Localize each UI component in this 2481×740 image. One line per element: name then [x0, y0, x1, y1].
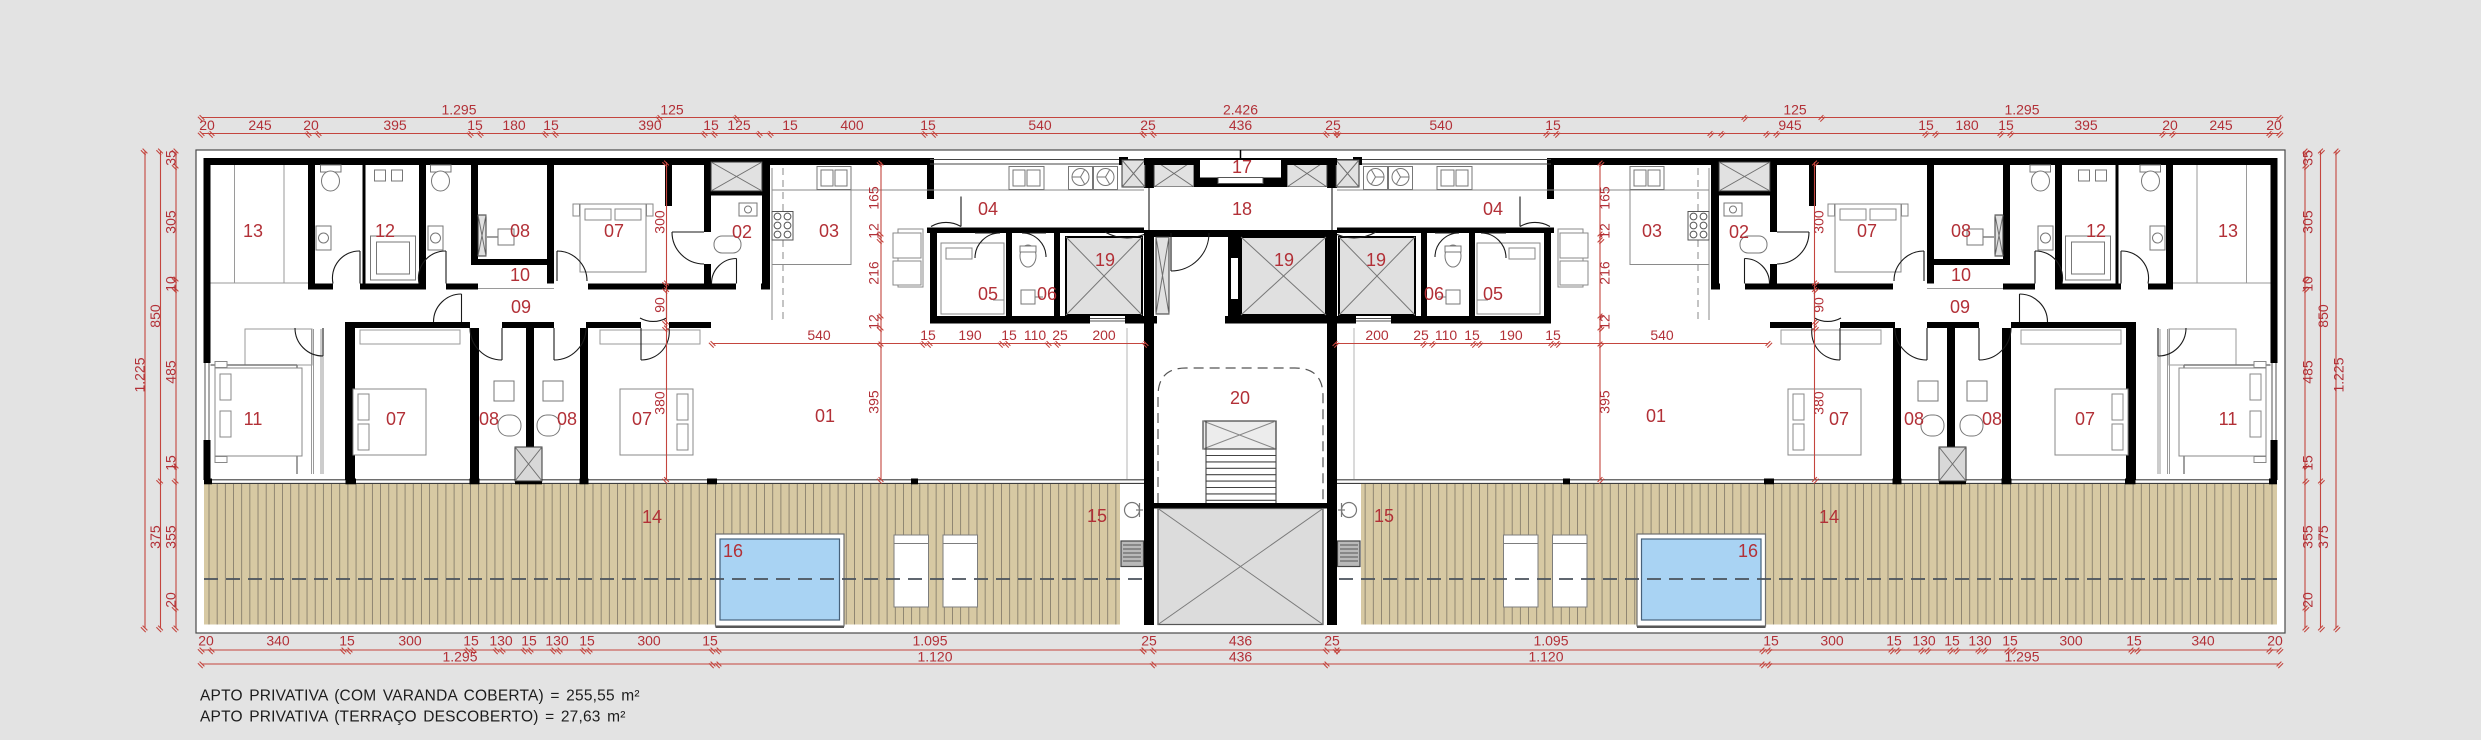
svg-text:11: 11: [2219, 409, 2238, 429]
svg-text:190: 190: [1499, 327, 1523, 343]
svg-text:15: 15: [1763, 633, 1779, 649]
svg-text:130: 130: [1912, 633, 1936, 649]
svg-text:540: 540: [1650, 327, 1674, 343]
svg-text:190: 190: [958, 327, 982, 343]
svg-text:19: 19: [1366, 250, 1386, 270]
svg-text:15: 15: [1374, 506, 1394, 526]
svg-text:340: 340: [2191, 633, 2215, 649]
svg-text:11: 11: [244, 409, 263, 429]
svg-text:19: 19: [1095, 250, 1115, 270]
svg-text:05: 05: [978, 284, 998, 304]
svg-text:200: 200: [1365, 327, 1389, 343]
svg-text:12: 12: [1597, 314, 1613, 330]
svg-text:395: 395: [866, 390, 882, 414]
svg-text:125: 125: [660, 102, 684, 118]
svg-text:90: 90: [652, 297, 668, 313]
svg-text:15: 15: [2300, 455, 2316, 471]
svg-text:1.120: 1.120: [917, 649, 952, 665]
svg-text:16: 16: [1738, 541, 1758, 561]
svg-text:130: 130: [545, 633, 569, 649]
svg-text:15: 15: [339, 633, 355, 649]
svg-text:15: 15: [920, 117, 936, 133]
svg-text:07: 07: [632, 409, 652, 429]
svg-text:08: 08: [510, 221, 530, 241]
svg-text:02: 02: [1729, 222, 1749, 242]
svg-text:15: 15: [2002, 633, 2018, 649]
svg-text:13: 13: [243, 221, 263, 241]
svg-text:APTO PRIVATIVA (TERRAÇO DESCOB: APTO PRIVATIVA (TERRAÇO DESCOBERTO) = 27…: [200, 709, 626, 726]
svg-text:375: 375: [2315, 525, 2331, 549]
svg-text:15: 15: [1545, 327, 1561, 343]
svg-text:15: 15: [1001, 327, 1017, 343]
svg-text:20: 20: [1230, 388, 1250, 408]
svg-text:216: 216: [1597, 261, 1613, 285]
svg-text:10: 10: [1951, 265, 1971, 285]
svg-text:540: 540: [1429, 117, 1453, 133]
svg-text:180: 180: [1955, 117, 1979, 133]
svg-text:15: 15: [463, 633, 479, 649]
svg-text:14: 14: [642, 507, 662, 527]
svg-text:485: 485: [2300, 360, 2316, 384]
svg-text:130: 130: [489, 633, 513, 649]
svg-text:390: 390: [638, 117, 662, 133]
svg-text:245: 245: [248, 117, 272, 133]
svg-text:355: 355: [2300, 525, 2316, 549]
svg-text:25: 25: [1413, 327, 1429, 343]
svg-text:1.095: 1.095: [912, 633, 947, 649]
svg-text:03: 03: [1642, 221, 1662, 241]
svg-text:14: 14: [1819, 507, 1839, 527]
svg-text:20: 20: [2267, 633, 2283, 649]
svg-text:15: 15: [1886, 633, 1902, 649]
svg-text:17: 17: [1232, 157, 1252, 177]
svg-text:19: 19: [1274, 250, 1294, 270]
svg-text:436: 436: [1229, 633, 1253, 649]
svg-text:APTO PRIVATIVA (COM VARANDA CO: APTO PRIVATIVA (COM VARANDA COBERTA) = 2…: [200, 688, 640, 705]
svg-text:200: 200: [1092, 327, 1116, 343]
svg-text:06: 06: [1037, 284, 1057, 304]
svg-text:10: 10: [2300, 276, 2316, 292]
svg-text:1.295: 1.295: [442, 649, 477, 665]
svg-text:07: 07: [604, 221, 624, 241]
svg-text:110: 110: [1024, 327, 1047, 343]
svg-text:20: 20: [2266, 117, 2282, 133]
svg-text:300: 300: [1820, 633, 1844, 649]
svg-text:07: 07: [386, 409, 406, 429]
svg-text:25: 25: [1140, 117, 1156, 133]
svg-text:12: 12: [2086, 221, 2106, 241]
svg-text:945: 945: [1778, 117, 1802, 133]
svg-text:300: 300: [637, 633, 661, 649]
svg-text:165: 165: [866, 186, 882, 210]
svg-text:130: 130: [1968, 633, 1992, 649]
svg-text:04: 04: [1483, 199, 1503, 219]
svg-text:90: 90: [1811, 297, 1827, 313]
svg-text:1.295: 1.295: [441, 102, 476, 118]
svg-text:1.095: 1.095: [1533, 633, 1568, 649]
svg-text:180: 180: [502, 117, 526, 133]
svg-text:850: 850: [147, 304, 163, 328]
svg-text:08: 08: [557, 409, 577, 429]
svg-text:25: 25: [1052, 327, 1068, 343]
svg-text:01: 01: [1646, 406, 1666, 426]
svg-text:07: 07: [2075, 409, 2095, 429]
svg-text:20: 20: [303, 117, 319, 133]
svg-text:35: 35: [2300, 150, 2316, 166]
svg-text:15: 15: [1464, 327, 1480, 343]
svg-text:15: 15: [2126, 633, 2142, 649]
svg-text:245: 245: [2209, 117, 2233, 133]
svg-text:375: 375: [147, 525, 163, 549]
svg-text:540: 540: [807, 327, 831, 343]
svg-text:850: 850: [2315, 304, 2331, 328]
svg-text:25: 25: [1324, 633, 1340, 649]
svg-text:15: 15: [1918, 117, 1934, 133]
svg-text:15: 15: [579, 633, 595, 649]
svg-text:12: 12: [1597, 223, 1613, 239]
svg-text:20: 20: [2162, 117, 2178, 133]
svg-text:15: 15: [703, 117, 719, 133]
svg-text:02: 02: [732, 222, 752, 242]
svg-text:10: 10: [163, 276, 179, 292]
svg-text:305: 305: [2300, 210, 2316, 234]
svg-text:1.295: 1.295: [2004, 649, 2039, 665]
svg-text:07: 07: [1857, 221, 1877, 241]
svg-text:1.225: 1.225: [2331, 357, 2347, 392]
svg-text:2.426: 2.426: [1223, 102, 1258, 118]
svg-text:15: 15: [1087, 506, 1107, 526]
svg-text:1.120: 1.120: [1528, 649, 1563, 665]
svg-text:340: 340: [266, 633, 290, 649]
svg-text:355: 355: [163, 525, 179, 549]
svg-text:05: 05: [1483, 284, 1503, 304]
svg-text:08: 08: [1982, 409, 2002, 429]
svg-text:15: 15: [920, 327, 936, 343]
svg-text:12: 12: [866, 223, 882, 239]
svg-text:300: 300: [1811, 210, 1827, 234]
svg-text:436: 436: [1229, 117, 1253, 133]
svg-text:300: 300: [2059, 633, 2083, 649]
svg-text:380: 380: [652, 391, 668, 415]
svg-text:300: 300: [652, 210, 668, 234]
svg-text:125: 125: [727, 117, 751, 133]
svg-text:13: 13: [2218, 221, 2238, 241]
svg-text:20: 20: [198, 633, 214, 649]
svg-text:540: 540: [1028, 117, 1052, 133]
svg-text:06: 06: [1424, 284, 1444, 304]
svg-text:25: 25: [1325, 117, 1341, 133]
svg-text:20: 20: [199, 117, 215, 133]
svg-text:395: 395: [2074, 117, 2098, 133]
svg-text:1.295: 1.295: [2004, 102, 2039, 118]
svg-text:03: 03: [819, 221, 839, 241]
svg-text:04: 04: [978, 199, 998, 219]
svg-text:15: 15: [1944, 633, 1960, 649]
svg-text:25: 25: [1141, 633, 1157, 649]
svg-text:1.225: 1.225: [132, 357, 148, 392]
svg-text:10: 10: [510, 265, 530, 285]
svg-text:20: 20: [163, 592, 179, 608]
svg-text:15: 15: [543, 117, 559, 133]
svg-text:08: 08: [1951, 221, 1971, 241]
svg-text:165: 165: [1597, 186, 1613, 210]
svg-text:15: 15: [1998, 117, 2014, 133]
svg-text:15: 15: [163, 455, 179, 471]
svg-text:08: 08: [1904, 409, 1924, 429]
svg-text:15: 15: [521, 633, 537, 649]
svg-text:07: 07: [1829, 409, 1849, 429]
svg-text:216: 216: [866, 261, 882, 285]
svg-text:400: 400: [840, 117, 864, 133]
svg-text:436: 436: [1229, 649, 1253, 665]
svg-text:08: 08: [479, 409, 499, 429]
svg-text:09: 09: [1950, 297, 1970, 317]
svg-text:01: 01: [815, 406, 835, 426]
svg-text:15: 15: [1545, 117, 1561, 133]
svg-text:12: 12: [375, 221, 395, 241]
svg-text:12: 12: [866, 314, 882, 330]
svg-text:35: 35: [163, 150, 179, 166]
svg-text:15: 15: [702, 633, 718, 649]
svg-text:395: 395: [1597, 390, 1613, 414]
svg-text:09: 09: [511, 297, 531, 317]
svg-text:395: 395: [383, 117, 407, 133]
svg-text:305: 305: [163, 210, 179, 234]
svg-text:16: 16: [723, 541, 743, 561]
svg-text:18: 18: [1232, 199, 1252, 219]
svg-text:485: 485: [163, 360, 179, 384]
svg-text:300: 300: [398, 633, 422, 649]
svg-text:20: 20: [2300, 592, 2316, 608]
svg-text:110: 110: [1435, 327, 1458, 343]
svg-text:15: 15: [782, 117, 798, 133]
svg-text:380: 380: [1811, 391, 1827, 415]
svg-text:15: 15: [467, 117, 483, 133]
svg-text:125: 125: [1783, 102, 1807, 118]
